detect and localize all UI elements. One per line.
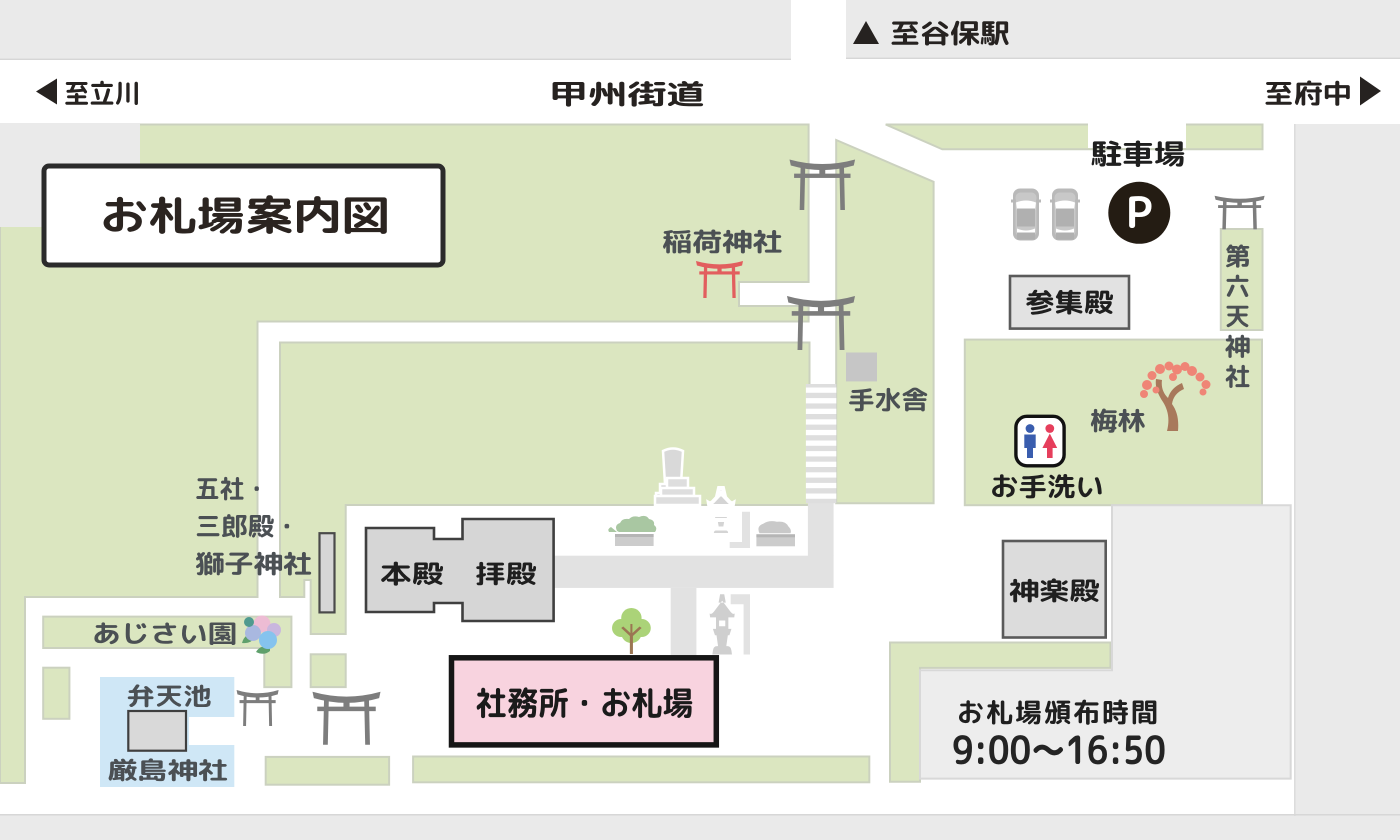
svg-text:本殿: 本殿 (380, 556, 444, 592)
svg-text:甲州街道: 甲州街道 (549, 74, 705, 113)
svg-text:三郎殿・: 三郎殿・ (195, 509, 300, 545)
svg-text:弁天池: 弁天池 (127, 678, 212, 713)
svg-text:あじさい園: あじさい園 (92, 616, 237, 651)
svg-text:お手洗い: お手洗い (990, 467, 1104, 505)
svg-text:稲荷神社: 稲荷神社 (662, 224, 783, 260)
svg-text:参集殿: 参集殿 (1025, 283, 1114, 321)
svg-text:手水舎: 手水舎 (848, 382, 928, 418)
svg-text:P: P (1126, 182, 1153, 242)
svg-text:至府中: 至府中 (1264, 74, 1352, 112)
svg-text:至谷保駅: 至谷保駅 (890, 13, 1010, 52)
svg-text:社務所・お札場: 社務所・お札場 (476, 679, 694, 726)
svg-text:お札場案内図: お札場案内図 (100, 187, 390, 244)
svg-text:五社・: 五社・ (195, 471, 269, 507)
svg-text:拝殿: 拝殿 (475, 556, 537, 592)
svg-text:厳島神社: 厳島神社 (107, 753, 229, 787)
svg-text:神楽殿: 神楽殿 (1009, 573, 1100, 609)
svg-text:梅林: 梅林 (1090, 403, 1146, 439)
svg-text:社: 社 (1225, 360, 1251, 395)
svg-text:9:00〜16:50: 9:00〜16:50 (952, 723, 1166, 777)
svg-text:至立川: 至立川 (64, 74, 140, 112)
svg-text:駐車場: 駐車場 (1091, 134, 1186, 174)
svg-text:獅子神社: 獅子神社 (195, 546, 312, 582)
